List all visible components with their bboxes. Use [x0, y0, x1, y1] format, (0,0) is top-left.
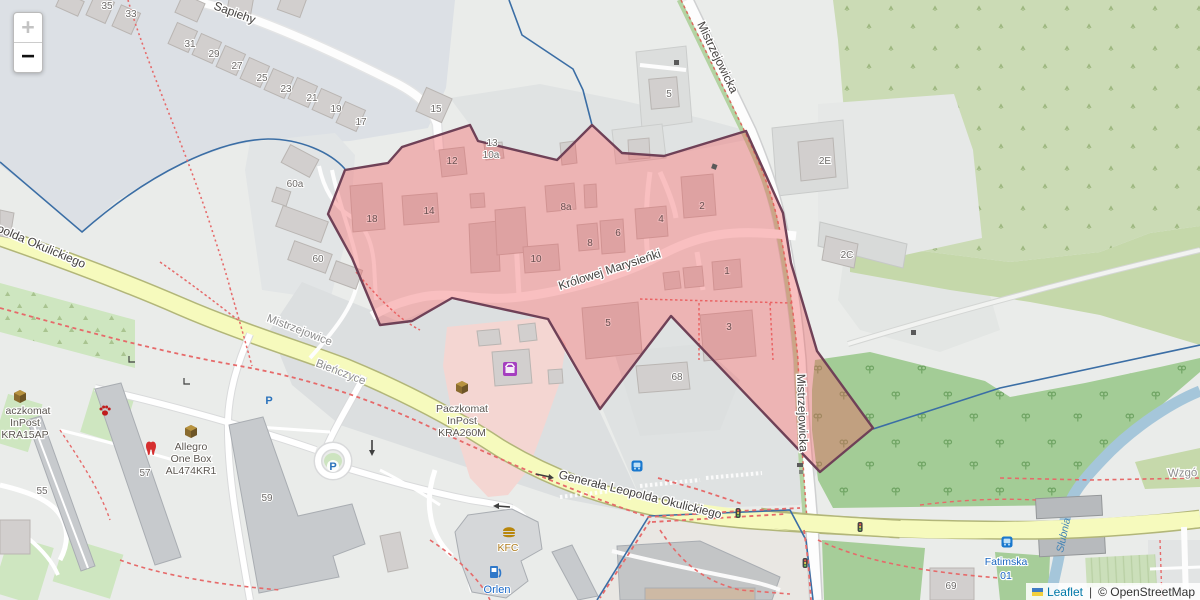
svg-text:P: P [265, 395, 272, 407]
svg-text:One Box: One Box [171, 453, 213, 465]
svg-text:14: 14 [423, 206, 435, 217]
svg-text:60: 60 [312, 254, 324, 265]
svg-text:5: 5 [605, 318, 611, 329]
svg-text:31: 31 [184, 39, 196, 50]
svg-text:17: 17 [355, 117, 367, 128]
svg-text:10: 10 [530, 254, 542, 265]
svg-text:59: 59 [261, 493, 273, 504]
svg-text:Fatimska: Fatimska [985, 556, 1028, 568]
svg-text:8: 8 [587, 238, 593, 249]
svg-text:68: 68 [671, 372, 683, 383]
svg-text:13: 13 [486, 138, 498, 149]
svg-text:5: 5 [666, 89, 672, 100]
svg-text:KRA15AP: KRA15AP [1, 429, 48, 441]
svg-text:29: 29 [208, 49, 220, 60]
svg-text:Wzgó: Wzgó [1168, 467, 1198, 480]
svg-text:Mistrzejowicka: Mistrzejowicka [794, 374, 811, 453]
svg-text:8a: 8a [560, 202, 572, 213]
svg-text:Allegro: Allegro [175, 441, 208, 453]
svg-text:3: 3 [726, 322, 732, 333]
svg-text:Paczkomat: Paczkomat [436, 403, 488, 415]
svg-text:AL474KR1: AL474KR1 [166, 465, 217, 477]
svg-text:KRA260M: KRA260M [438, 427, 486, 439]
svg-text:15: 15 [430, 104, 442, 115]
svg-text:InPost: InPost [447, 415, 477, 427]
svg-text:23: 23 [280, 84, 292, 95]
svg-text:P: P [329, 461, 336, 473]
svg-text:55: 55 [36, 486, 48, 497]
svg-text:57: 57 [139, 468, 151, 479]
svg-text:10a: 10a [483, 150, 500, 161]
svg-text:18: 18 [366, 214, 378, 225]
svg-text:33: 33 [125, 9, 137, 20]
svg-text:2E: 2E [819, 156, 832, 167]
svg-text:35: 35 [101, 1, 113, 12]
svg-text:InPost: InPost [10, 417, 40, 429]
svg-text:19: 19 [330, 104, 342, 115]
svg-text:Orlen: Orlen [484, 584, 511, 596]
svg-text:6: 6 [615, 228, 621, 239]
svg-text:KFC: KFC [498, 542, 519, 554]
svg-text:69: 69 [945, 581, 957, 592]
svg-text:01: 01 [1000, 570, 1012, 582]
svg-text:2C: 2C [841, 250, 854, 261]
svg-text:4: 4 [658, 214, 664, 225]
svg-text:12: 12 [446, 156, 458, 167]
svg-text:1: 1 [724, 266, 730, 277]
svg-text:60a: 60a [287, 179, 304, 190]
svg-text:25: 25 [256, 73, 268, 84]
svg-text:2: 2 [699, 201, 705, 212]
svg-text:27: 27 [231, 61, 243, 72]
svg-text:21: 21 [306, 93, 318, 104]
svg-text:aczkomat: aczkomat [6, 405, 51, 417]
